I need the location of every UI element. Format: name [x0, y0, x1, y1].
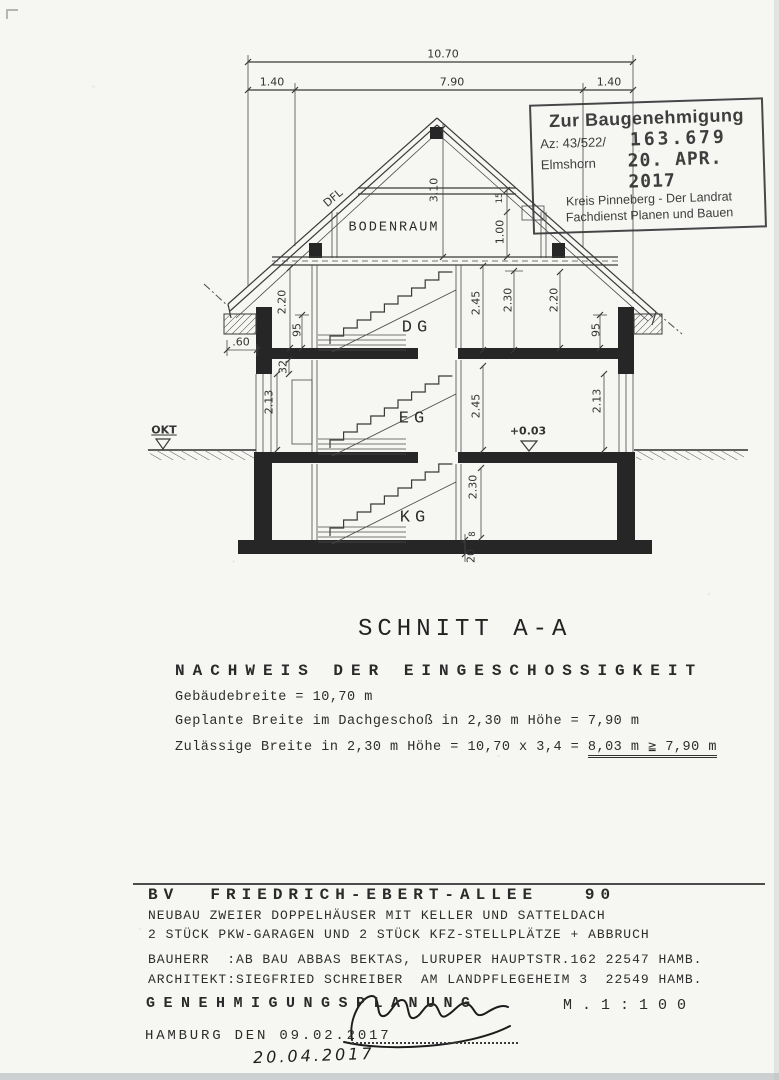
- scanned-plan-page: 10.701.407.901.40DFL3.101.0015BODENRAUM2…: [0, 0, 779, 1080]
- dimension-label: 3.10: [428, 178, 441, 203]
- approval-stamp: Zur Baugenehmigung Az: 43/522/ 163.679 E…: [529, 97, 767, 234]
- dimension-label: 2.13: [263, 390, 276, 415]
- dimension-label: 1.40: [260, 76, 285, 89]
- client-line: BAUHERR :AB BAU ABBAS BEKTAS, LURUPER HA…: [148, 952, 702, 967]
- signature-dotted-line: [352, 1026, 518, 1044]
- dimension-label: 95: [590, 323, 603, 337]
- dimension-label: 7.90: [440, 76, 465, 89]
- dimension-label: 2.20: [276, 290, 289, 315]
- proof-line-3: Zulässige Breite in 2,30 m Höhe = 10,70 …: [175, 738, 717, 755]
- section-title: SCHNITT A-A: [358, 616, 571, 643]
- project-line-2: 2 STÜCK PKW-GARAGEN UND 2 STÜCK KFZ-STEL…: [148, 927, 650, 942]
- planning-type: GENEHMIGUNGSPLANUNG: [146, 995, 479, 1012]
- room-label: EG: [399, 410, 429, 429]
- scale-label: M.1:100: [563, 997, 696, 1014]
- room-label: DG: [402, 319, 432, 338]
- scan-edge-bottom: [0, 1073, 779, 1080]
- dimension-label: 32: [277, 360, 290, 374]
- dimension-label: 8: [468, 531, 478, 536]
- dimension-label: 95: [291, 323, 304, 337]
- dimension-label: 2.45: [470, 291, 483, 316]
- dimension-label: 20: [465, 549, 478, 563]
- dimension-label: 1.00: [494, 220, 507, 245]
- dimension-label: OKT: [151, 424, 176, 437]
- dimension-label: 2.13: [591, 389, 604, 414]
- dimension-label: 2.30: [502, 288, 515, 313]
- dimension-label: 1.40: [597, 76, 622, 89]
- project-title: BV FRIEDRICH-EBERT-ALLEE 90: [148, 886, 616, 904]
- stamp-place: Elmshorn: [541, 156, 596, 173]
- project-line-1: NEUBAU ZWEIER DOPPELHÄUSER MIT KELLER UN…: [148, 908, 606, 923]
- stamp-date: 20. APR. 2017: [627, 147, 755, 193]
- dimension-label: +0.03: [510, 425, 546, 438]
- stamp-az-label: Az: 43/522/: [540, 134, 606, 151]
- scan-edge-right: [774, 0, 779, 1080]
- room-label: BODENRAUM: [349, 221, 440, 236]
- dimension-label: 2.30: [467, 475, 480, 500]
- dimension-label: 2.20: [548, 288, 561, 313]
- dimension-label: 15: [495, 193, 505, 204]
- proof-heading: NACHWEIS DER EINGESCHOSSIGKEIT: [175, 662, 703, 680]
- architect-line: ARCHITEKT:SIEGFRIED SCHREIBER AM LANDPFL…: [148, 972, 702, 987]
- proof-line-2: Geplante Breite im Dachgeschoß in 2,30 m…: [175, 714, 639, 729]
- proof-line-1: Gebäudebreite = 10,70 m: [175, 690, 373, 705]
- titleblock-divider: [133, 883, 765, 885]
- proof-result: 8,03 m ≧ 7,90 m: [588, 740, 717, 758]
- dimension-label: .60: [232, 336, 250, 349]
- dimension-label: 10.70: [427, 48, 459, 61]
- room-label: KG: [400, 509, 430, 528]
- dimension-label: 2.45: [470, 394, 483, 419]
